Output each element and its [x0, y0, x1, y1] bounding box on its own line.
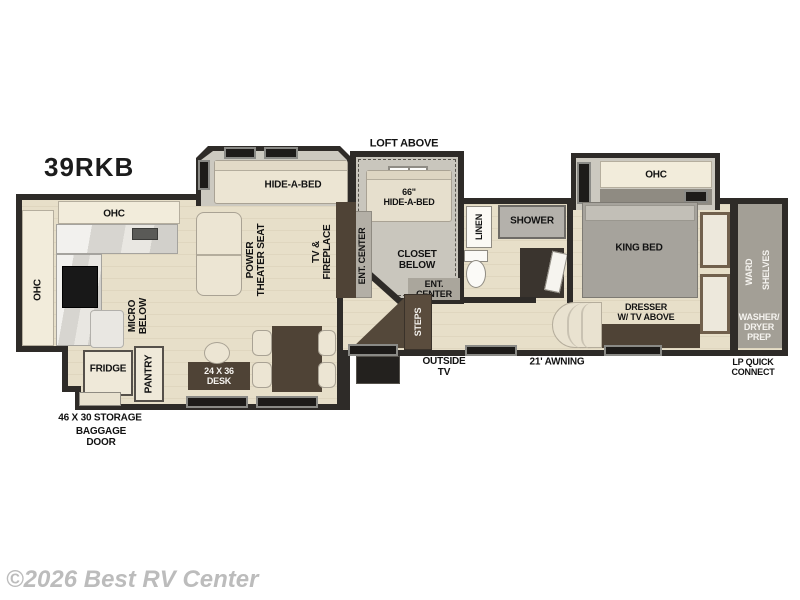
- label-outside-tv: OUTSIDE TV: [422, 356, 465, 378]
- label-dresser: DRESSER W/ TV ABOVE: [618, 302, 675, 322]
- bed-pillows: [585, 205, 695, 221]
- label-closet-below: CLOSET BELOW: [397, 249, 436, 271]
- label-ohc-left: OHC: [33, 279, 44, 301]
- dinette-chair: [318, 362, 336, 388]
- page-title: 39RKB: [44, 152, 134, 183]
- label-tv-fireplace: TV & FIREPLACE: [311, 225, 333, 280]
- kitchen-ohc-left: [22, 210, 54, 346]
- label-shelves: SHELVES: [761, 250, 771, 290]
- theater-seat: [196, 212, 242, 296]
- entry-door: [348, 344, 398, 356]
- window: [186, 396, 248, 408]
- dinette-chair: [252, 362, 272, 388]
- front-window: [700, 212, 730, 268]
- dinette-table: [272, 326, 322, 392]
- label-fridge: FRIDGE: [90, 364, 127, 375]
- label-66-hide-a-bed: 66" HIDE-A-BED: [384, 187, 435, 207]
- label-ent-center-side: ENT. CENTER: [357, 228, 367, 285]
- toilet-bowl: [466, 260, 486, 288]
- rear-compartment-wall: [730, 202, 738, 352]
- kitchen-counter-top: [56, 224, 178, 254]
- window: [264, 147, 298, 159]
- window: [577, 162, 591, 204]
- desk-chair: [204, 342, 230, 364]
- storage-bin: [79, 392, 121, 406]
- window: [465, 345, 517, 356]
- label-hide-a-bed: HIDE-A-BED: [265, 180, 322, 191]
- label-ward: WARD: [744, 259, 754, 286]
- label-pantry: PANTRY: [144, 355, 155, 394]
- floorplan: 39RKB ©2026 Best RV Center HIDE-A-BED LO…: [0, 0, 800, 600]
- label-loft-above: LOFT ABOVE: [370, 139, 438, 150]
- outside-tv-box: [356, 356, 400, 384]
- sofa-back: [215, 161, 347, 171]
- label-baggage-door: BAGGAGE DOOR: [76, 426, 126, 448]
- window: [604, 345, 662, 356]
- window: [224, 147, 256, 159]
- label-storage: 46 X 30 STORAGE: [58, 413, 142, 424]
- label-shower: SHOWER: [510, 216, 554, 227]
- label-lp-quick-connect: LP QUICK CONNECT: [731, 357, 774, 377]
- label-king-bed: KING BED: [615, 243, 662, 254]
- label-bedroom-ohc: OHC: [645, 170, 667, 181]
- cooktop: [62, 266, 98, 308]
- label-washer-dryer: WASHER/ DRYER PREP: [739, 312, 780, 342]
- window: [198, 160, 210, 190]
- label-linen: LINEN: [474, 214, 484, 240]
- bath-wall-bottom: [460, 297, 536, 303]
- dinette-chair: [318, 330, 336, 356]
- watermark: ©2026 Best RV Center: [6, 566, 258, 594]
- bath-wall-right: [567, 204, 573, 303]
- kitchen-island: [90, 310, 124, 348]
- front-window: [700, 274, 730, 334]
- label-steps: STEPS: [413, 308, 423, 337]
- step-line: [581, 303, 603, 349]
- label-awning: 21' AWNING: [529, 357, 584, 368]
- kitchen-sink: [132, 228, 158, 240]
- dinette-chair: [252, 330, 272, 356]
- seat-divider: [197, 254, 241, 256]
- window: [256, 396, 318, 408]
- bedroom-steps: [552, 302, 602, 348]
- tv-fireplace-unit: [336, 202, 356, 298]
- label-ohc-top: OHC: [103, 209, 125, 220]
- sofa-back: [367, 171, 451, 180]
- label-desk: 24 X 36 DESK: [204, 366, 234, 386]
- label-micro-below: MICRO BELOW: [127, 298, 149, 334]
- label-theater-seat: POWER THEATER SEAT: [245, 224, 267, 297]
- body-step-wall: [337, 350, 350, 410]
